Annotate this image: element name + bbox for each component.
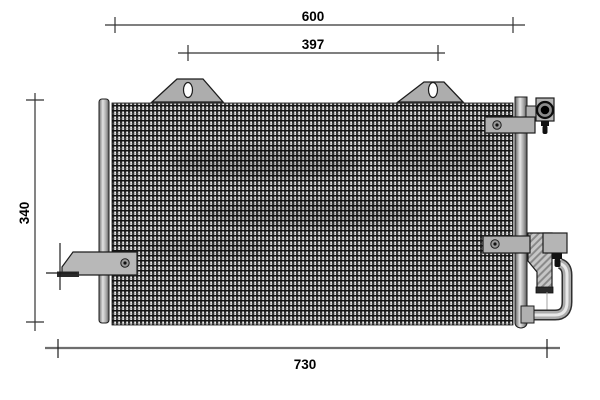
upper-bracket-screw-center [495,123,498,126]
mount-slot-right [429,83,438,98]
angled-bracket-foot [536,287,553,293]
dimension-mount-spacing: 397 [178,37,445,61]
dimension-core-width: 600 [105,9,525,33]
dimension-core-width-label: 600 [302,9,325,24]
fitting-block-bottom [543,233,567,253]
dimension-core-height: 340 [17,93,44,331]
mount-slot-left [184,83,193,98]
dimension-mount-spacing-label: 397 [302,37,325,52]
left-header-tank [99,99,109,323]
bottom-left-bracket-screw-center [123,261,126,264]
condenser-core [112,103,513,325]
top-mount-bracket-right [398,82,463,102]
lower-side-bracket [483,236,530,253]
technical-drawing-canvas: 600 397 340 730 [0,0,600,400]
top-mount-bracket-left [152,79,223,102]
dimension-overall-width: 730 [45,339,560,372]
lower-bracket-screw-center [493,242,496,245]
refrigerant-port-bore [541,106,550,115]
condenser-drawing: 600 397 340 730 [0,0,600,400]
bottom-nozzle [552,253,562,267]
dimension-core-height-label: 340 [17,202,32,225]
tube-end-block [521,306,534,323]
dimension-overall-width-label: 730 [294,357,317,372]
top-nozzle [541,121,549,134]
